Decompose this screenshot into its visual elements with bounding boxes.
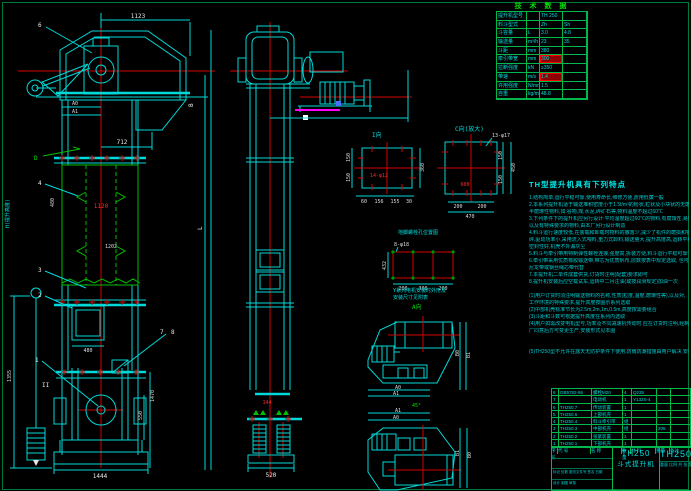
feature-line	[529, 342, 689, 349]
inspection-door-inner	[76, 310, 100, 336]
title-block: 标记 处数 更改文件号 签名 日期 设计 制图 审核 TH250 斗式提升机 T…	[551, 447, 691, 491]
tech-row-label: 带速	[497, 73, 527, 82]
feature-line: (4)用户如需改变电机型号,功率及不同减速机传动时 应在订货时注明,经制造	[529, 321, 689, 328]
bom-code	[559, 396, 592, 403]
detail-i-155: 155	[390, 199, 399, 205]
viewb-motor-fins	[377, 434, 387, 450]
dim-a1: A1	[72, 109, 78, 115]
motor-flange	[364, 80, 370, 106]
bom-material: Y132S-4	[632, 396, 657, 403]
feature-line: 6.牵引带采用优质橡胶输送带,带芯为优质帆布,层数按表中规定选取, 也可采用	[529, 258, 689, 265]
tech-row-value1: 300	[540, 55, 563, 64]
tech-row-label: 提升机型号	[497, 12, 527, 21]
feature-line	[529, 286, 689, 293]
callout-1: 1	[35, 357, 39, 364]
tech-row-unit: mm	[527, 47, 540, 56]
detail-i-hole: 14-φ12	[370, 173, 388, 179]
tech-row-value1: ≥350	[540, 64, 563, 73]
tech-row-value2	[563, 64, 587, 73]
bom-seq: 6	[552, 404, 559, 411]
reducer	[310, 52, 343, 72]
detail-c-450: 450	[511, 163, 517, 172]
bom-note	[671, 389, 691, 396]
callout-leaders	[42, 27, 166, 406]
motor-shaft-end	[354, 86, 364, 100]
feature-line: 1.结构简单,运行平稳可靠,使用寿命长,维修方便,费用低廉一般	[529, 195, 689, 202]
bom-qty: 1	[623, 433, 632, 440]
bom-weight	[657, 404, 671, 411]
bom-name: 螺栓M20	[592, 389, 623, 396]
detail-view-c: C向(放大) 13-φ17 600 150 150 450 200 200 47…	[437, 125, 517, 220]
bom-weight	[657, 411, 671, 418]
detail-i-150a: 150	[346, 153, 352, 162]
boot-bracket-left	[54, 398, 66, 424]
viewa-outline	[368, 322, 455, 383]
viewa-label: A向	[412, 303, 422, 311]
tech-row-value1: 1.5	[540, 82, 563, 91]
revision-row-empty2	[552, 459, 612, 470]
viewa-b1: B1	[466, 352, 472, 358]
viewa-b0: B0	[455, 350, 461, 356]
section-ii-label: II	[42, 382, 50, 389]
title-block-name-zone: TH250 斗式提升机	[613, 448, 660, 490]
anchor-hole: 8-φ18	[394, 242, 409, 248]
bom-name: 上部机壳	[592, 411, 623, 418]
dim-550: 550	[138, 411, 144, 420]
feature-line: 密封性好,机壳不外漏灰尘	[529, 244, 689, 251]
tech-row-value2	[563, 55, 587, 64]
bom-code: TH250.3	[559, 425, 592, 432]
side-dim-lines	[270, 70, 408, 122]
dim-144: 144	[262, 400, 271, 406]
title-block-revision-zone: 标记 处数 更改文件号 签名 日期 设计 制图 审核	[552, 448, 613, 490]
tech-row-label: 料斗型式	[497, 21, 527, 30]
side-head-cap	[257, 26, 279, 32]
detail-i-156: 156	[374, 199, 383, 205]
detail-i-30: 30	[406, 199, 412, 205]
feature-line: 工作环境的特殊要求,提升高度按图示系列选取	[529, 300, 689, 307]
tech-row-unit: mm	[527, 55, 540, 64]
inspection-door	[72, 306, 104, 340]
viewb-centerlines	[388, 425, 462, 490]
bom-material	[632, 411, 657, 418]
bom-code: TH250.2	[559, 433, 592, 440]
feature-line: 8.提升机安装后应空载试车,运转中二月注油(或按润滑规定)加油一次	[529, 279, 689, 286]
title-name: 斗式提升机	[613, 460, 659, 469]
detail-c-150b: 150	[498, 175, 504, 184]
viewa-pad2	[414, 368, 424, 378]
viewb-a1: A1	[395, 408, 401, 414]
bom-weight	[657, 389, 671, 396]
tech-row-label: 牵引带宽	[497, 55, 527, 64]
bom-seq: 4	[552, 418, 559, 425]
detail-view-i: I向 14-φ12 150 150 360 60 156 155 30	[346, 131, 426, 205]
dim-1444: 1444	[93, 473, 108, 480]
anchor-outline	[393, 252, 453, 278]
bom-name: 张紧装置	[592, 433, 623, 440]
bom-note	[671, 411, 691, 418]
feature-line: 5.料斗与牵引带用特制弹性螺栓连接,强度高,拆装方便,料斗运行平稳可靠一只	[529, 251, 689, 258]
detail-i-360: 360	[420, 163, 426, 172]
bom-note	[671, 433, 691, 440]
front-view: 1123 712 A0 A1 1120 1202 480 480 1444 13…	[4, 13, 215, 480]
tech-row-value1: TH 250	[540, 12, 563, 21]
viewa-note1: Y系列电机安装时外形及	[393, 287, 446, 294]
title-model: TH250	[613, 448, 659, 460]
viewa-motor	[372, 346, 394, 362]
detail-c-hole: 13-φ17	[492, 133, 510, 139]
bom-seq: 7	[552, 396, 559, 403]
dim-1355: 1355	[7, 370, 13, 382]
bom-qty: 1	[623, 411, 632, 418]
detail-c-centerlines	[437, 134, 505, 202]
motor-fins	[325, 82, 345, 104]
bom-seq: 3	[552, 425, 559, 432]
tech-row-value1: 3.0	[540, 29, 563, 38]
dim-480-v: 480	[50, 198, 56, 207]
bom-qty: 1	[623, 404, 632, 411]
cad-drawing-sheet[interactable]: 1123 712 A0 A1 1120 1202 480 480 1444 13…	[0, 0, 691, 491]
detail-i-60: 60	[361, 199, 367, 205]
tech-row-label: 拉断强度	[497, 64, 527, 73]
features-lines: 1.结构简单,运行平稳可靠,使用寿命长,维修方便,费用低廉一般2.本系列提升机适…	[529, 195, 689, 356]
bom-weight	[657, 418, 671, 425]
feature-line: (5)TH250型不允许在露天无防护条件下使用,防雨防潮措施由用户解决 安装.	[529, 349, 689, 356]
viewa-note2: 安装尺寸见附表	[393, 294, 428, 301]
viewa-centerlines	[388, 316, 460, 352]
viewb-outline	[368, 428, 455, 490]
viewa-dim-lines	[368, 322, 466, 396]
tech-row-unit: N/mm	[527, 82, 540, 91]
feature-line: 2.本系列提升机适于输送堆积密度小于1.5t/m³的粉状,粒状及小块状的无磨琢性…	[529, 202, 689, 209]
viewb-pad1	[398, 438, 410, 450]
bom-note	[671, 396, 691, 403]
tech-row-value1: Zh	[540, 21, 563, 30]
coupling-disc	[303, 57, 313, 83]
tech-row-label: 斗容量	[497, 29, 527, 38]
tech-row-value2	[563, 73, 587, 82]
column-walls	[62, 100, 138, 455]
callout-7: 7	[160, 329, 164, 336]
tech-row-label: 斗距	[497, 47, 527, 56]
tech-row-unit: kg/m	[527, 90, 540, 99]
bom-material	[632, 418, 657, 425]
bom-material: Q235	[632, 389, 657, 396]
tech-row-value2: Sh	[563, 21, 587, 30]
dim-520: 520	[266, 472, 277, 479]
bom-qty: 组	[623, 418, 632, 425]
anchor-title: 地脚螺栓孔位置图	[398, 229, 438, 236]
anchor-432: 432	[382, 261, 388, 270]
tech-row-value1: 48.8	[540, 90, 563, 99]
tech-row-value2	[563, 12, 587, 21]
feature-line: 3.下列条件下的提升机应另行设计:平均温度超过60℃的物料,有腐蚀性,易燃易爆	[529, 216, 689, 223]
feature-line: 半磨琢性物料,如:谷物,煤,水泥,碎矿石等,物料温度不超过60℃	[529, 209, 689, 216]
tech-row-unit: kN	[527, 64, 540, 73]
bom-code: TH250.6	[559, 411, 592, 418]
feature-line: 碎,驱动功率小,采用流入式喂料,重力式卸料,输送量大,提升高度高,运转平稳	[529, 237, 689, 244]
callout-2: 2	[38, 292, 42, 299]
dim-1470: 1470	[150, 390, 156, 402]
bom-code: TH250.7	[559, 404, 592, 411]
bom-name: 传动装置	[592, 404, 623, 411]
bom-material	[632, 433, 657, 440]
bom-name: 中部机壳	[592, 425, 623, 432]
viewb-motor	[372, 434, 396, 450]
boot-side-dim	[248, 464, 294, 472]
tech-row-unit: L	[527, 29, 540, 38]
feature-line: 7.本提升机二单件成套供货,订货时注明(配套)要求即可	[529, 272, 689, 279]
selection-grip-blue[interactable]	[336, 101, 341, 106]
mid-section	[62, 165, 138, 285]
tech-row-value2	[563, 90, 587, 99]
tech-row-value1: 380	[540, 47, 563, 56]
viewb-b1: B1	[455, 450, 461, 456]
bom-note	[671, 418, 691, 425]
detail-i-150b: 150	[346, 173, 352, 182]
bom-weight	[657, 433, 671, 440]
feature-line: (1)用户订货时须注明输送物料的名称,性质(粒度,温度,磨琢性等),以及对,	[529, 293, 689, 300]
title-block-number-zone: TH250 重量 比例 共 张 第 张	[660, 448, 691, 490]
weld-marks	[253, 410, 289, 415]
anchor-bolt-crosses	[391, 250, 455, 280]
tech-data-table: 提升机型号 TH 250 料斗型式 Zh Sh 斗容量 L 3.0 4.8 输送…	[496, 11, 588, 100]
bom-name: 料斗牵引带	[592, 418, 623, 425]
tech-row-label: 自重	[497, 90, 527, 99]
feature-line: 4.料斗运行速度较低,在装载和卸载时物料的撒落少,减少了机件的磨损和物料的破	[529, 230, 689, 237]
tech-row-unit	[527, 12, 540, 21]
viewb-a0: A0	[393, 415, 399, 421]
bom-code: TH250.4	[559, 418, 592, 425]
anchor-dim-lines	[388, 252, 453, 284]
callout-8: 8	[171, 329, 175, 336]
detail-c-200b: 200	[477, 204, 486, 210]
dim-1202: 1202	[105, 244, 117, 250]
bom-material	[632, 425, 657, 432]
bom-qty: 1	[623, 396, 632, 403]
tech-row-value2	[563, 82, 587, 91]
feature-line	[529, 335, 689, 342]
tech-table-title: 技 术 数 据	[496, 1, 588, 11]
detail-c-label: C向(放大)	[455, 125, 484, 133]
tech-row-value2: 35	[563, 38, 587, 47]
top-view-b: A1 A0 B1 B0	[368, 408, 473, 490]
side-view: 520 144	[230, 22, 412, 479]
callout-4: 4	[38, 180, 42, 187]
feature-line: (3)斗距和斗数可根据提升高度在系列内选取	[529, 314, 689, 321]
revision-row-empty1	[552, 448, 612, 459]
bom-qty: 组	[623, 425, 632, 432]
dim-a0: A0	[72, 101, 78, 107]
callout-6: 6	[38, 22, 42, 29]
detail-i-centerlines	[354, 142, 420, 194]
dim-1123: 1123	[131, 13, 146, 20]
detail-c-470: 470	[465, 214, 474, 220]
detail-c-150a: 150	[498, 151, 504, 160]
viewb-pad2	[414, 438, 426, 450]
counterweight-arrow	[33, 460, 39, 466]
feature-line: 以及有特殊要求的物料,由本厂另行设计制造	[529, 223, 689, 230]
tech-row-unit: m³/h	[527, 38, 540, 47]
bom-weight: 205	[657, 425, 671, 432]
detail-i-label: I向	[372, 131, 382, 139]
detail-c-600: 600	[460, 182, 469, 188]
revision-row-roles: 设计 制图 审核	[552, 480, 612, 491]
tech-row-value1: 23	[540, 38, 563, 47]
feature-line: 厂同意后方可变更生产,安装形式见本图	[529, 328, 689, 335]
tech-row-value1: 1.4	[540, 73, 563, 82]
tech-row-unit: m/s	[527, 73, 540, 82]
discharge-spout	[136, 100, 186, 130]
label-L: L	[197, 226, 204, 230]
anchor-bolt-plan: 地脚螺栓孔位置图 8-φ18 432 200 300 200	[382, 229, 455, 292]
flange-bands	[54, 158, 146, 305]
viewa-a1: A1	[393, 391, 399, 397]
viewb-b0: B0	[467, 452, 473, 458]
feature-line: 尼龙带或钢丝绳芯带代替	[529, 265, 689, 272]
section-d-label: D	[34, 155, 38, 162]
bom-seq: 2	[552, 433, 559, 440]
revision-row-labels: 标记 处数 更改文件号 签名 日期	[552, 469, 612, 480]
label-B: B	[188, 103, 195, 107]
takeup-guides	[72, 368, 128, 440]
bom-weight	[657, 396, 671, 403]
viewb-dim-lines-right	[460, 428, 467, 488]
top-view-a: Y系列电机安装时外形及 安装尺寸见附表 A向 B0 B1 A0 A1 45°	[368, 287, 472, 409]
bom-qty: 4	[623, 389, 632, 396]
bom-seq: 5	[552, 411, 559, 418]
tech-row-label: 许用强度	[497, 82, 527, 91]
features-notes: TH型提升机具有下列特点 1.结构简单,运行平稳可靠,使用寿命长,维修方便,费用…	[529, 179, 689, 356]
head-casing	[60, 31, 186, 100]
features-title: TH型提升机具有下列特点	[529, 179, 689, 190]
viewa-angle: 45°	[412, 403, 421, 409]
dim-712: 712	[117, 139, 128, 146]
bom-material	[632, 404, 657, 411]
bom-table: 8 GB5782-86 螺栓M20 4 Q235 7 电动机 1 Y132S-4…	[551, 388, 691, 448]
anchor-dividers	[413, 252, 433, 278]
dim-1120: 1120	[94, 203, 109, 210]
bom-code: GB5782-86	[559, 389, 592, 396]
detail-c-200a: 200	[453, 204, 462, 210]
drawing-number: TH250	[660, 448, 691, 461]
counterweight-hatch	[27, 433, 45, 453]
tech-row-label: 输送量	[497, 38, 527, 47]
feature-line: (2)中部机壳标准节长为2.5m,2m,1m,0.5m,高度按需要组合	[529, 307, 689, 314]
boot-side-base	[248, 455, 294, 463]
bom-name: 电动机	[592, 396, 623, 403]
bom-note	[671, 425, 691, 432]
tech-row-value2: 4.8	[563, 29, 587, 38]
bom-seq: 8	[552, 389, 559, 396]
viewa-pad1	[398, 368, 408, 378]
scale-row: 重量 比例 共 张 第 张	[660, 461, 691, 468]
callout-3: 3	[38, 267, 42, 274]
tech-row-unit	[527, 21, 540, 30]
bom-note	[671, 404, 691, 411]
viewa-bracket	[383, 365, 427, 378]
dim-door-480: 480	[83, 348, 92, 354]
label-lift-height: H(提升高度)	[4, 199, 11, 228]
tech-row-value2	[563, 47, 587, 56]
